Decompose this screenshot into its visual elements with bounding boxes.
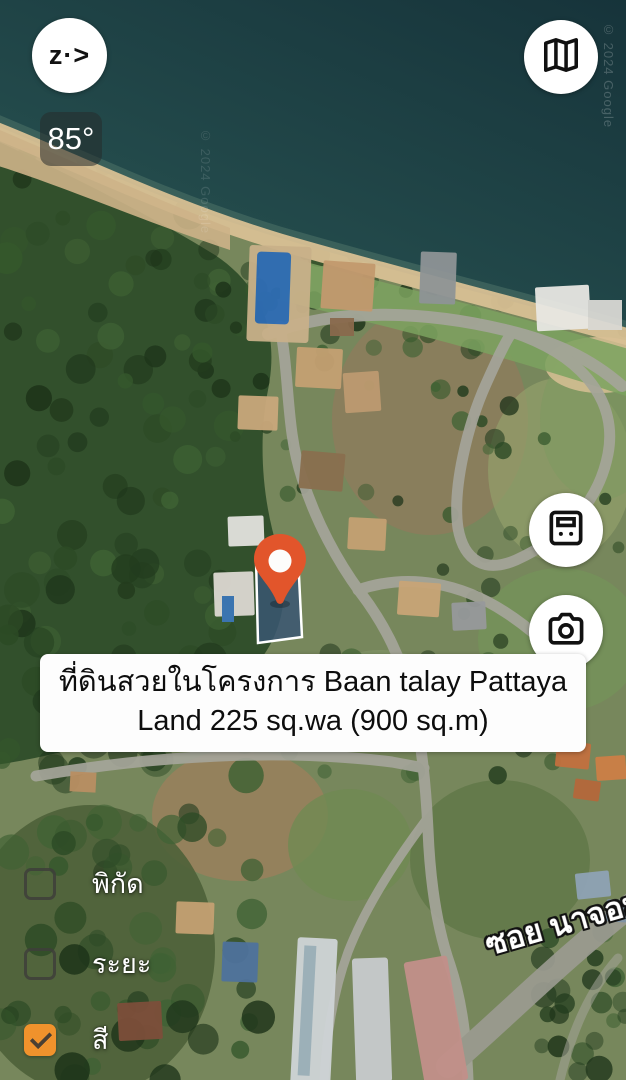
folded-map-icon <box>539 33 583 82</box>
app-logo: z·> <box>49 40 90 71</box>
camera-icon <box>544 608 588 657</box>
color-checkbox[interactable] <box>24 1024 56 1056</box>
calculator-icon <box>544 506 588 555</box>
coordinates-label: พิกัด <box>92 862 144 905</box>
plot-info-line2: Land 225 sq.wa (900 sq.m) <box>48 702 578 741</box>
option-row-color[interactable]: สี <box>24 1018 108 1061</box>
plot-info-line1: ที่ดินสวยในโครงการ Baan talay Pattaya <box>48 663 578 702</box>
color-label: สี <box>92 1018 108 1061</box>
app-logo-button[interactable]: z·> <box>32 18 107 93</box>
distance-checkbox[interactable] <box>24 948 56 980</box>
app-screen: ซอย นาจอม © 2024 Google © 2024 Google z·… <box>0 0 626 1080</box>
map-watermark: © 2024 Google <box>601 22 616 128</box>
distance-label: ระยะ <box>92 942 151 985</box>
plot-info-banner[interactable]: ที่ดินสวยในโครงการ Baan talay Pattaya La… <box>40 654 586 752</box>
compass-heading-badge: 85° <box>40 112 102 166</box>
option-row-distance[interactable]: ระยะ <box>24 942 151 985</box>
map-style-button[interactable] <box>524 20 598 94</box>
coordinates-checkbox[interactable] <box>24 868 56 900</box>
area-calculator-button[interactable] <box>529 493 603 567</box>
option-row-coordinates[interactable]: พิกัด <box>24 862 144 905</box>
map-watermark: © 2024 Google <box>198 128 213 234</box>
